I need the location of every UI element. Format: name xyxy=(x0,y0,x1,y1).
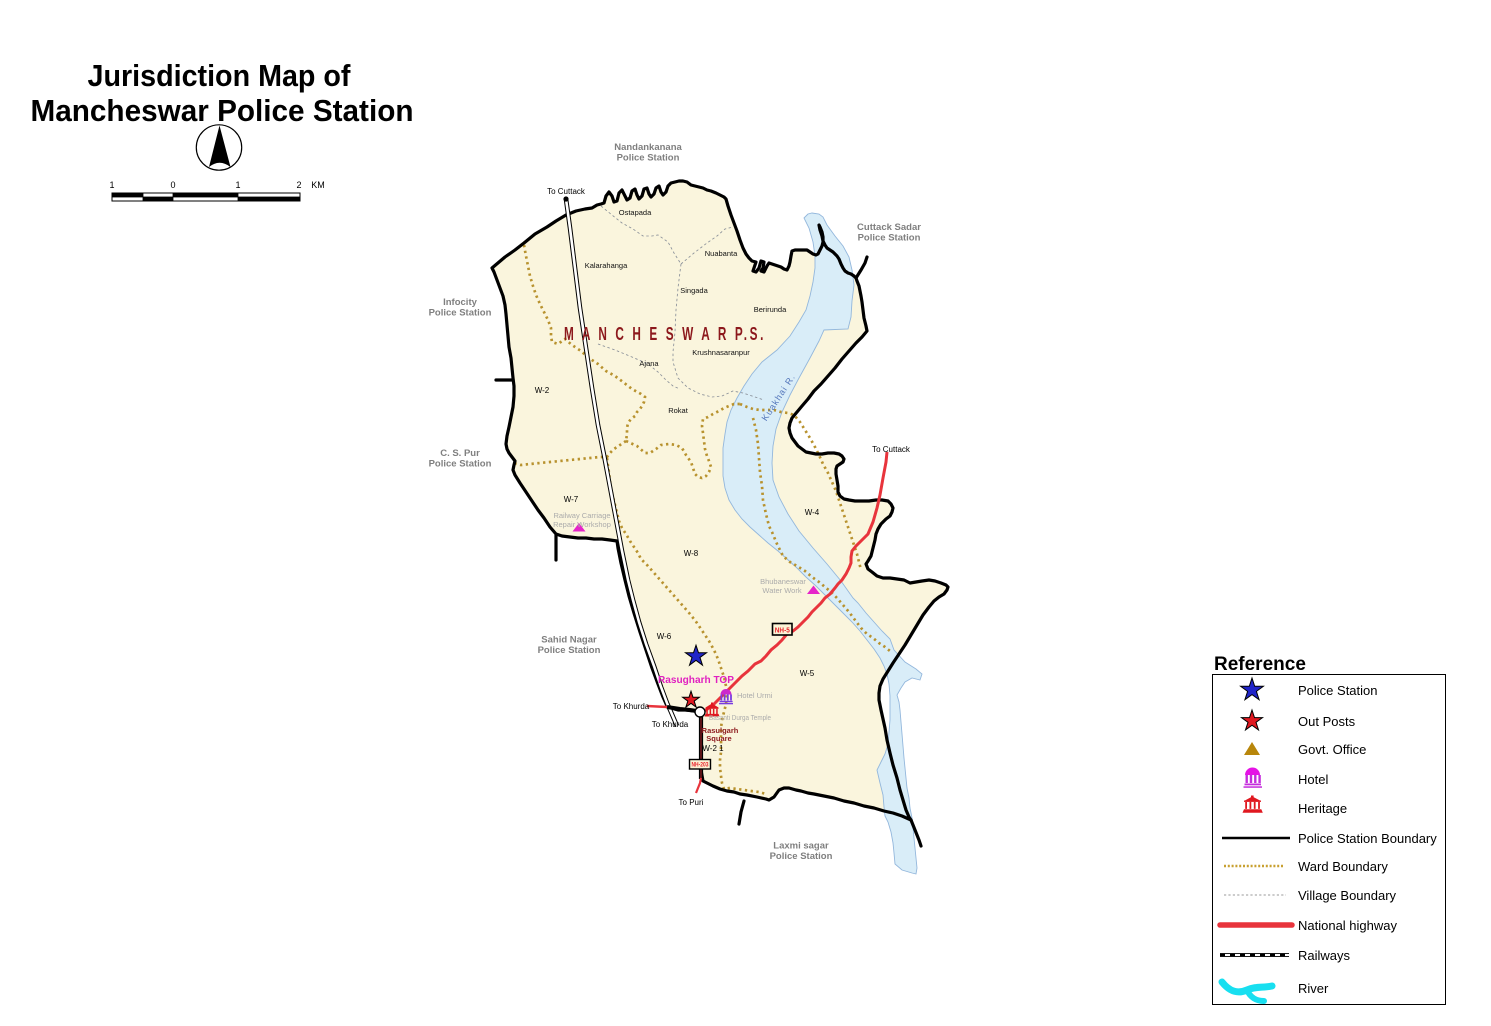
svg-text:Hotel Urmi: Hotel Urmi xyxy=(737,691,773,700)
svg-text:Out Posts: Out Posts xyxy=(1298,714,1356,729)
svg-text:Railways: Railways xyxy=(1298,948,1351,963)
svg-text:To Cuttack: To Cuttack xyxy=(547,187,586,196)
svg-text:NH-5: NH-5 xyxy=(775,626,790,635)
svg-text:Police Station: Police Station xyxy=(770,851,833,862)
svg-text:W-2: W-2 xyxy=(535,386,550,395)
svg-text:Laxmi sagar: Laxmi sagar xyxy=(773,841,829,852)
svg-text:Hotel: Hotel xyxy=(1298,772,1328,787)
svg-text:Infocity: Infocity xyxy=(443,297,477,308)
svg-text:Mancheswar Police Station: Mancheswar Police Station xyxy=(31,93,414,128)
svg-text:Police Station: Police Station xyxy=(1298,683,1378,698)
svg-text:Police Station: Police Station xyxy=(858,233,921,244)
svg-text:W-6: W-6 xyxy=(657,632,672,641)
svg-text:W-2 1: W-2 1 xyxy=(702,744,724,753)
svg-text:Jurisdiction Map of: Jurisdiction Map of xyxy=(88,58,352,93)
svg-text:W-7: W-7 xyxy=(564,495,579,504)
svg-text:Police Station: Police Station xyxy=(429,308,492,319)
svg-text:Rasugharh TOP: Rasugharh TOP xyxy=(658,675,734,686)
svg-text:River: River xyxy=(1298,981,1329,996)
svg-text:W-8: W-8 xyxy=(684,549,699,558)
svg-text:Water Work: Water Work xyxy=(762,586,801,595)
svg-text:Nuabanta: Nuabanta xyxy=(705,249,738,258)
svg-text:National highway: National highway xyxy=(1298,918,1398,933)
svg-text:C. S. Pur: C. S. Pur xyxy=(440,448,480,459)
svg-text:W-4: W-4 xyxy=(805,508,820,517)
svg-text:Ajana: Ajana xyxy=(639,359,659,368)
svg-text:Bhubaneswar: Bhubaneswar xyxy=(760,577,806,586)
svg-text:Nandankanana: Nandankanana xyxy=(614,142,682,153)
svg-text:1: 1 xyxy=(235,180,240,190)
svg-text:NH-203: NH-203 xyxy=(692,762,709,769)
svg-text:Singada: Singada xyxy=(680,286,708,295)
svg-text:Ward Boundary: Ward Boundary xyxy=(1298,859,1388,874)
svg-text:Sahid Nagar: Sahid Nagar xyxy=(541,635,597,646)
svg-text:W-5: W-5 xyxy=(800,669,815,678)
svg-text:0: 0 xyxy=(170,180,175,190)
svg-text:To Khurda: To Khurda xyxy=(652,720,689,729)
svg-text:Police Station: Police Station xyxy=(429,459,492,470)
svg-text:Cuttack Sadar: Cuttack Sadar xyxy=(857,222,921,233)
svg-text:Ostapada: Ostapada xyxy=(619,208,652,217)
svg-text:Village Boundary: Village Boundary xyxy=(1298,888,1397,903)
svg-text:Govt. Office: Govt. Office xyxy=(1298,742,1366,757)
svg-text:Repair Workshop: Repair Workshop xyxy=(553,520,611,529)
svg-text:Square: Square xyxy=(706,734,731,743)
svg-text:Kalarahanga: Kalarahanga xyxy=(585,261,628,270)
svg-text:Police Station: Police Station xyxy=(617,153,680,164)
svg-text:To Khurda: To Khurda xyxy=(613,702,650,711)
svg-text:Krushnasaranpur: Krushnasaranpur xyxy=(692,348,750,357)
svg-text:Rokat: Rokat xyxy=(668,406,689,415)
svg-text:To Puri: To Puri xyxy=(679,798,704,807)
svg-text:Police Station Boundary: Police Station Boundary xyxy=(1298,831,1437,846)
svg-text:2: 2 xyxy=(296,180,301,190)
svg-text:1: 1 xyxy=(109,180,114,190)
svg-text:Basanti Durga Temple: Basanti Durga Temple xyxy=(709,713,771,722)
svg-text:KM: KM xyxy=(311,180,325,190)
svg-text:M A N C H E S W A R P.S.: M A N C H E S W A R P.S. xyxy=(564,324,766,344)
svg-text:Reference: Reference xyxy=(1214,654,1306,675)
svg-text:Berirunda: Berirunda xyxy=(754,305,787,314)
svg-text:Heritage: Heritage xyxy=(1298,801,1347,816)
svg-text:Railway Carriage: Railway Carriage xyxy=(553,511,610,520)
svg-text:To Cuttack: To Cuttack xyxy=(872,445,911,454)
svg-text:Police Station: Police Station xyxy=(538,645,601,656)
